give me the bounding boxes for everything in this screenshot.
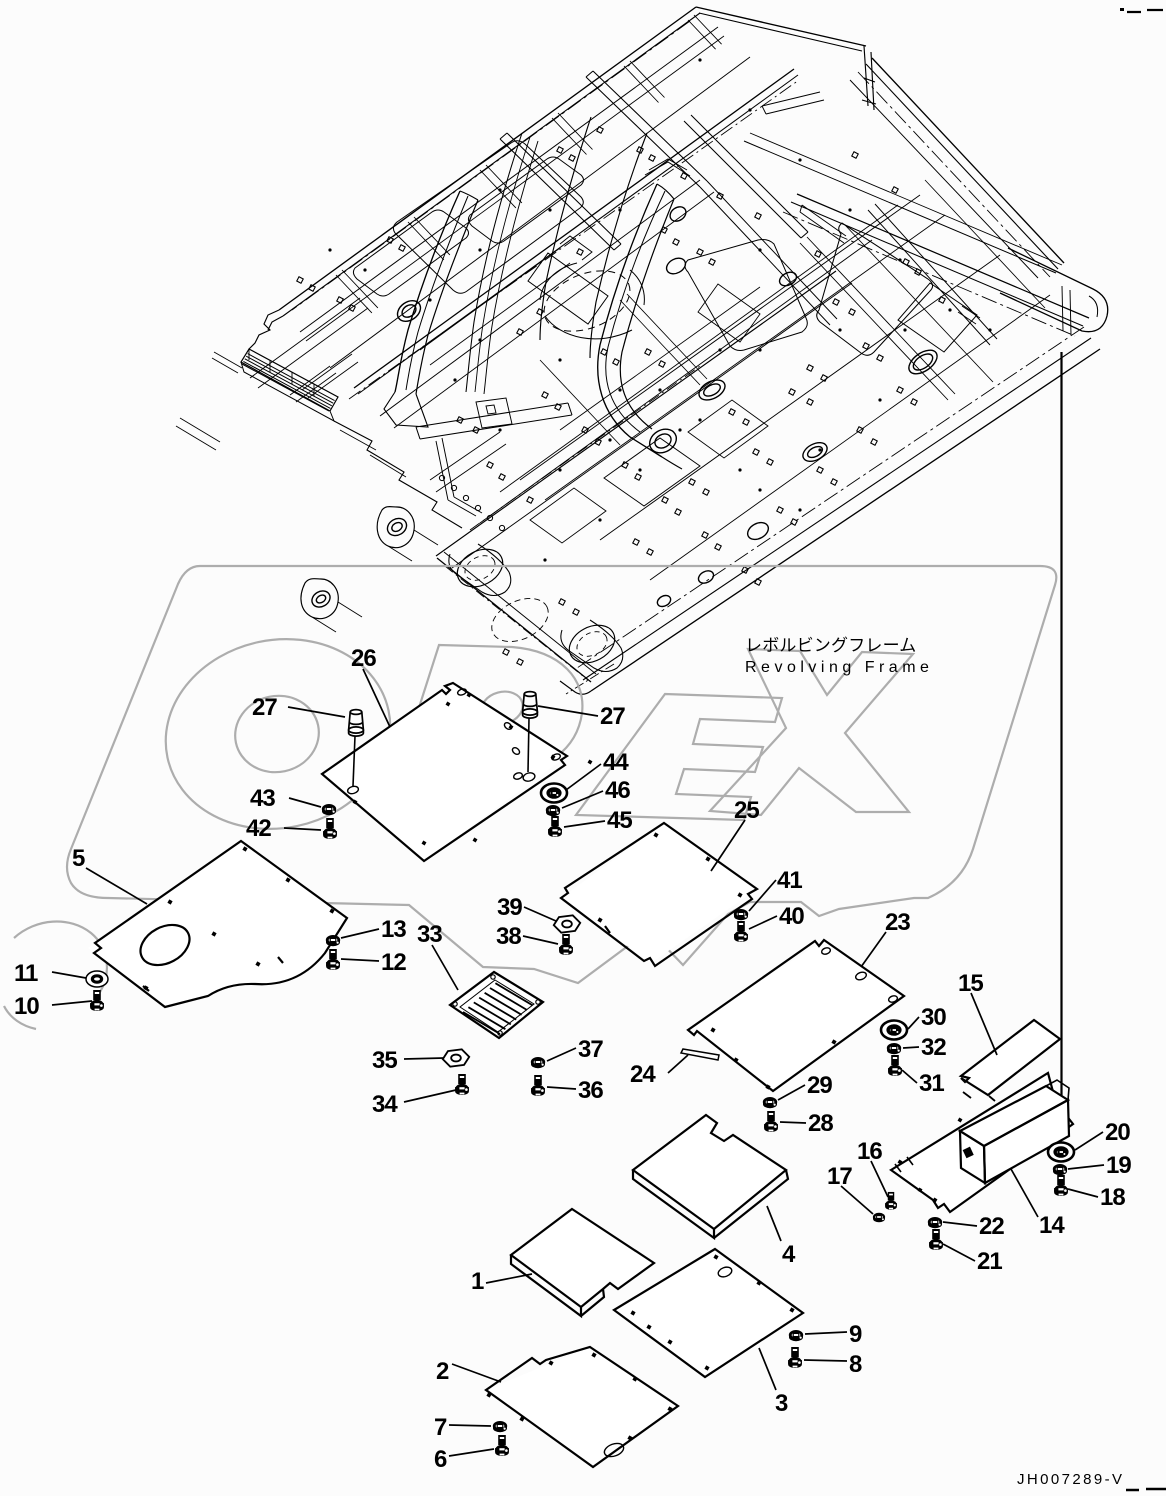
svg-text:27: 27 — [252, 694, 277, 721]
svg-text:38: 38 — [496, 923, 521, 950]
svg-text:27: 27 — [600, 703, 625, 730]
svg-text:22: 22 — [979, 1213, 1004, 1240]
svg-text:16: 16 — [857, 1138, 882, 1165]
svg-text:31: 31 — [919, 1070, 944, 1097]
svg-text:Revolving Frame: Revolving Frame — [745, 659, 933, 676]
svg-text:36: 36 — [578, 1077, 603, 1104]
svg-text:6: 6 — [434, 1446, 447, 1473]
svg-text:11: 11 — [14, 960, 38, 987]
svg-text:13: 13 — [381, 916, 406, 943]
svg-text:35: 35 — [372, 1047, 397, 1074]
svg-text:8: 8 — [849, 1351, 862, 1378]
svg-text:21: 21 — [977, 1248, 1002, 1275]
svg-text:19: 19 — [1106, 1152, 1131, 1179]
svg-text:9: 9 — [849, 1321, 862, 1348]
svg-text:44: 44 — [603, 749, 629, 776]
svg-text:34: 34 — [372, 1091, 398, 1118]
svg-text:29: 29 — [807, 1072, 832, 1099]
svg-text:14: 14 — [1039, 1212, 1065, 1239]
svg-text:32: 32 — [921, 1034, 946, 1061]
svg-text:1: 1 — [471, 1268, 484, 1295]
svg-text:12: 12 — [381, 949, 406, 976]
svg-text:45: 45 — [607, 807, 632, 834]
svg-text:39: 39 — [497, 894, 522, 921]
svg-text:28: 28 — [808, 1110, 833, 1137]
svg-text:2: 2 — [436, 1358, 449, 1385]
svg-text:18: 18 — [1100, 1184, 1125, 1211]
svg-text:40: 40 — [779, 903, 804, 930]
svg-text:4: 4 — [782, 1241, 796, 1268]
svg-text:20: 20 — [1105, 1119, 1130, 1146]
svg-text:15: 15 — [958, 970, 983, 997]
svg-text:42: 42 — [246, 815, 271, 842]
svg-text:43: 43 — [250, 785, 275, 812]
svg-text:41: 41 — [777, 867, 802, 894]
svg-text:33: 33 — [417, 921, 442, 948]
svg-text:23: 23 — [885, 909, 910, 936]
svg-text:17: 17 — [827, 1163, 852, 1190]
svg-text:37: 37 — [578, 1036, 603, 1063]
svg-text:24: 24 — [630, 1061, 656, 1088]
svg-text:7: 7 — [434, 1414, 447, 1441]
svg-text:10: 10 — [14, 993, 39, 1020]
svg-text:5: 5 — [72, 845, 85, 872]
svg-text:3: 3 — [775, 1390, 788, 1417]
svg-text:26: 26 — [351, 645, 376, 672]
svg-text:25: 25 — [734, 797, 759, 824]
svg-text:レボルビングフレーム: レボルビングフレーム — [745, 636, 917, 655]
svg-text:30: 30 — [921, 1004, 946, 1031]
svg-text:46: 46 — [605, 777, 630, 804]
svg-text:JH007289-V: JH007289-V — [1017, 1471, 1124, 1488]
